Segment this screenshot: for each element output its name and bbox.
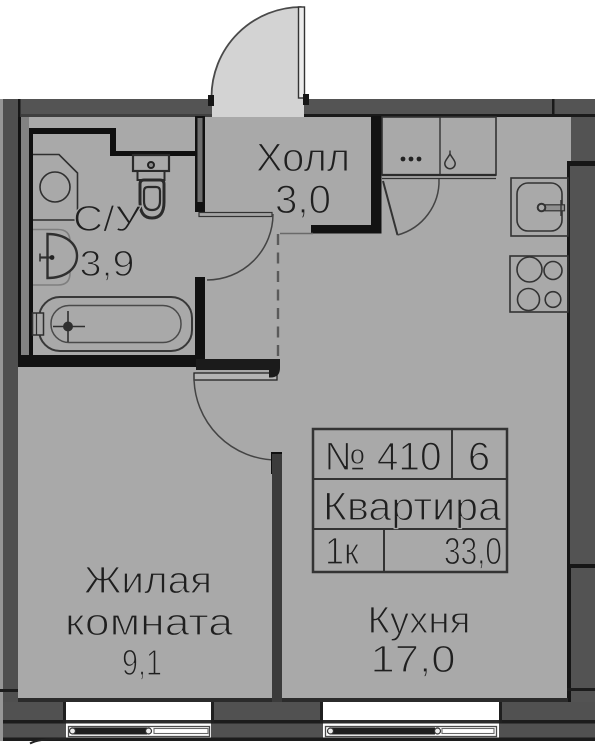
svg-text:Жилая: Жилая [84,560,212,602]
svg-text:9,1: 9,1 [122,642,162,683]
svg-text:1к: 1к [325,531,359,573]
svg-text:17,0: 17,0 [371,639,456,681]
svg-text:комната: комната [65,602,234,644]
svg-text:С/У: С/У [73,198,142,239]
svg-text:6: 6 [468,435,490,479]
svg-text:3,0: 3,0 [275,178,331,222]
svg-text:Холл: Холл [256,136,350,180]
svg-text:Кухня: Кухня [368,600,471,642]
svg-text:Квартира: Квартира [323,485,502,529]
svg-text:№ 410: № 410 [325,435,442,479]
svg-text:3,9: 3,9 [80,243,135,284]
svg-text:33,0: 33,0 [444,531,502,573]
